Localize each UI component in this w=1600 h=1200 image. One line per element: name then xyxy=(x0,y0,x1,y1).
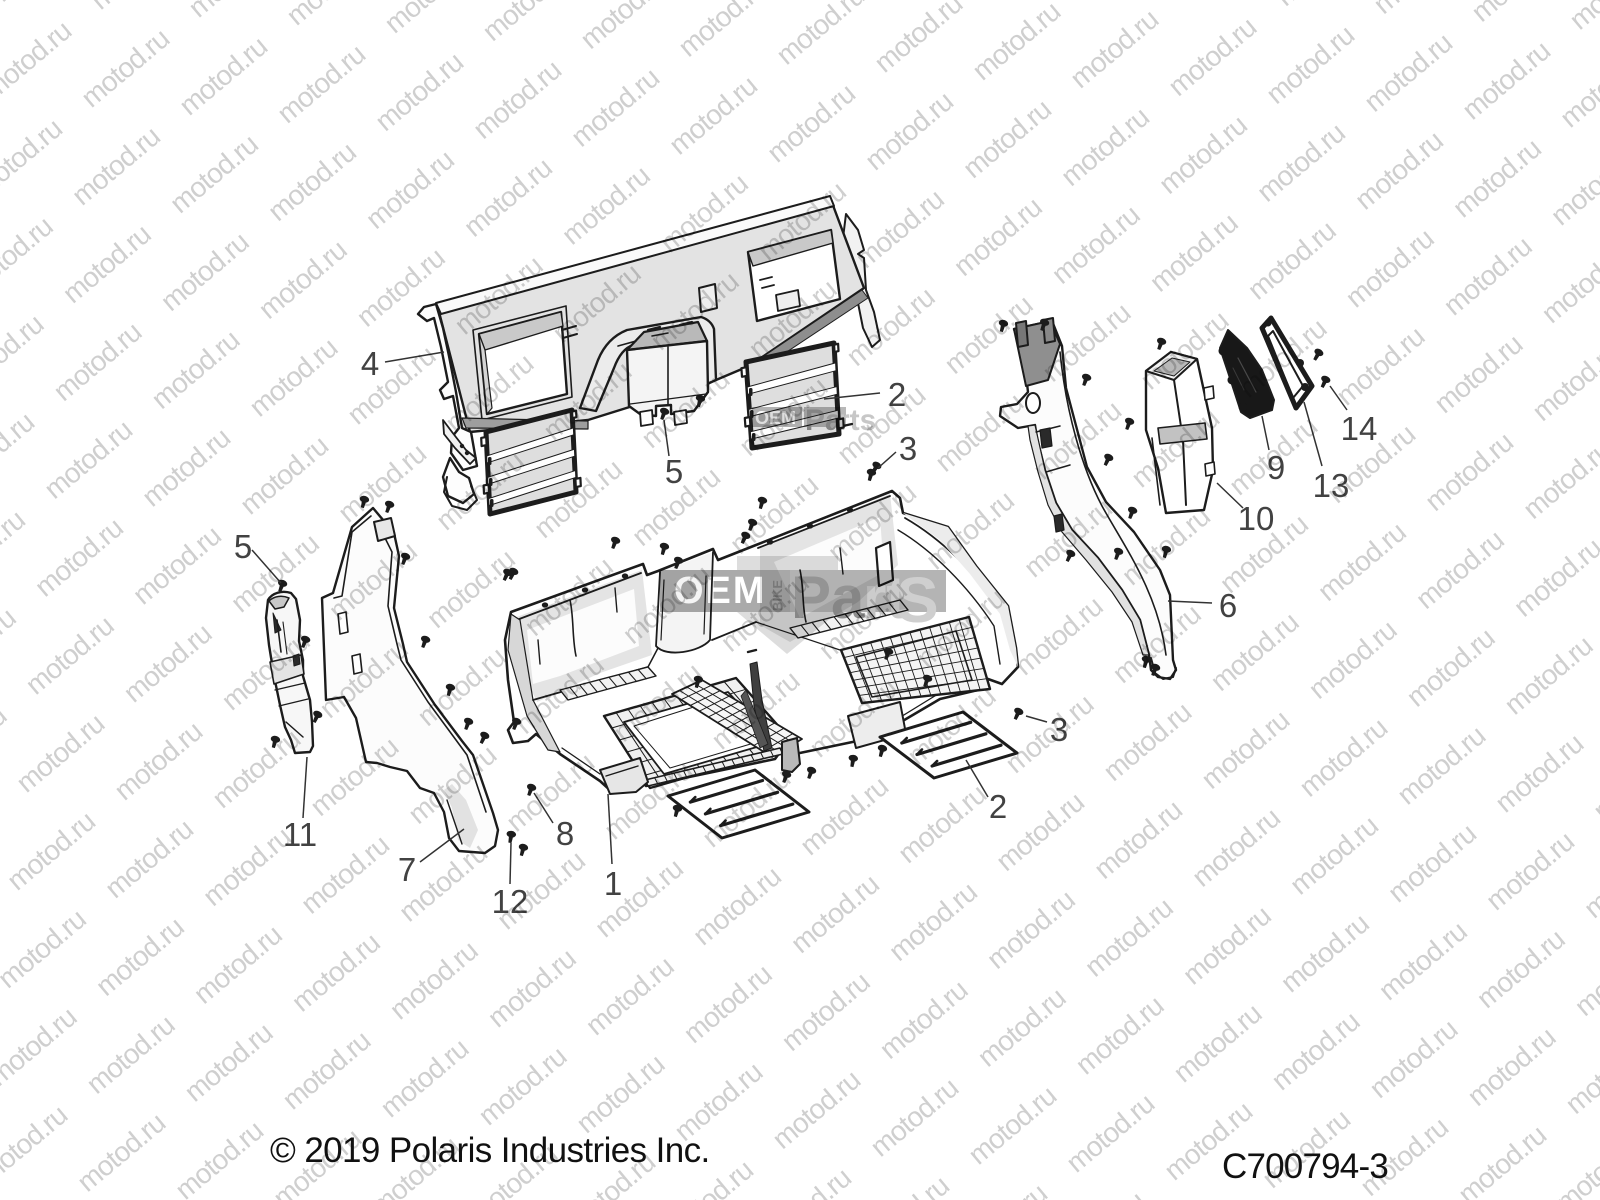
svg-text:7: 7 xyxy=(398,851,416,888)
svg-text:© 2019 Polaris Industries Inc.: © 2019 Polaris Industries Inc. xyxy=(270,1131,710,1170)
svg-text:2: 2 xyxy=(989,788,1007,825)
svg-text:3: 3 xyxy=(899,430,917,467)
svg-text:5: 5 xyxy=(234,528,252,565)
svg-text:C700794-3: C700794-3 xyxy=(1222,1147,1388,1186)
svg-text:14: 14 xyxy=(1341,410,1378,447)
